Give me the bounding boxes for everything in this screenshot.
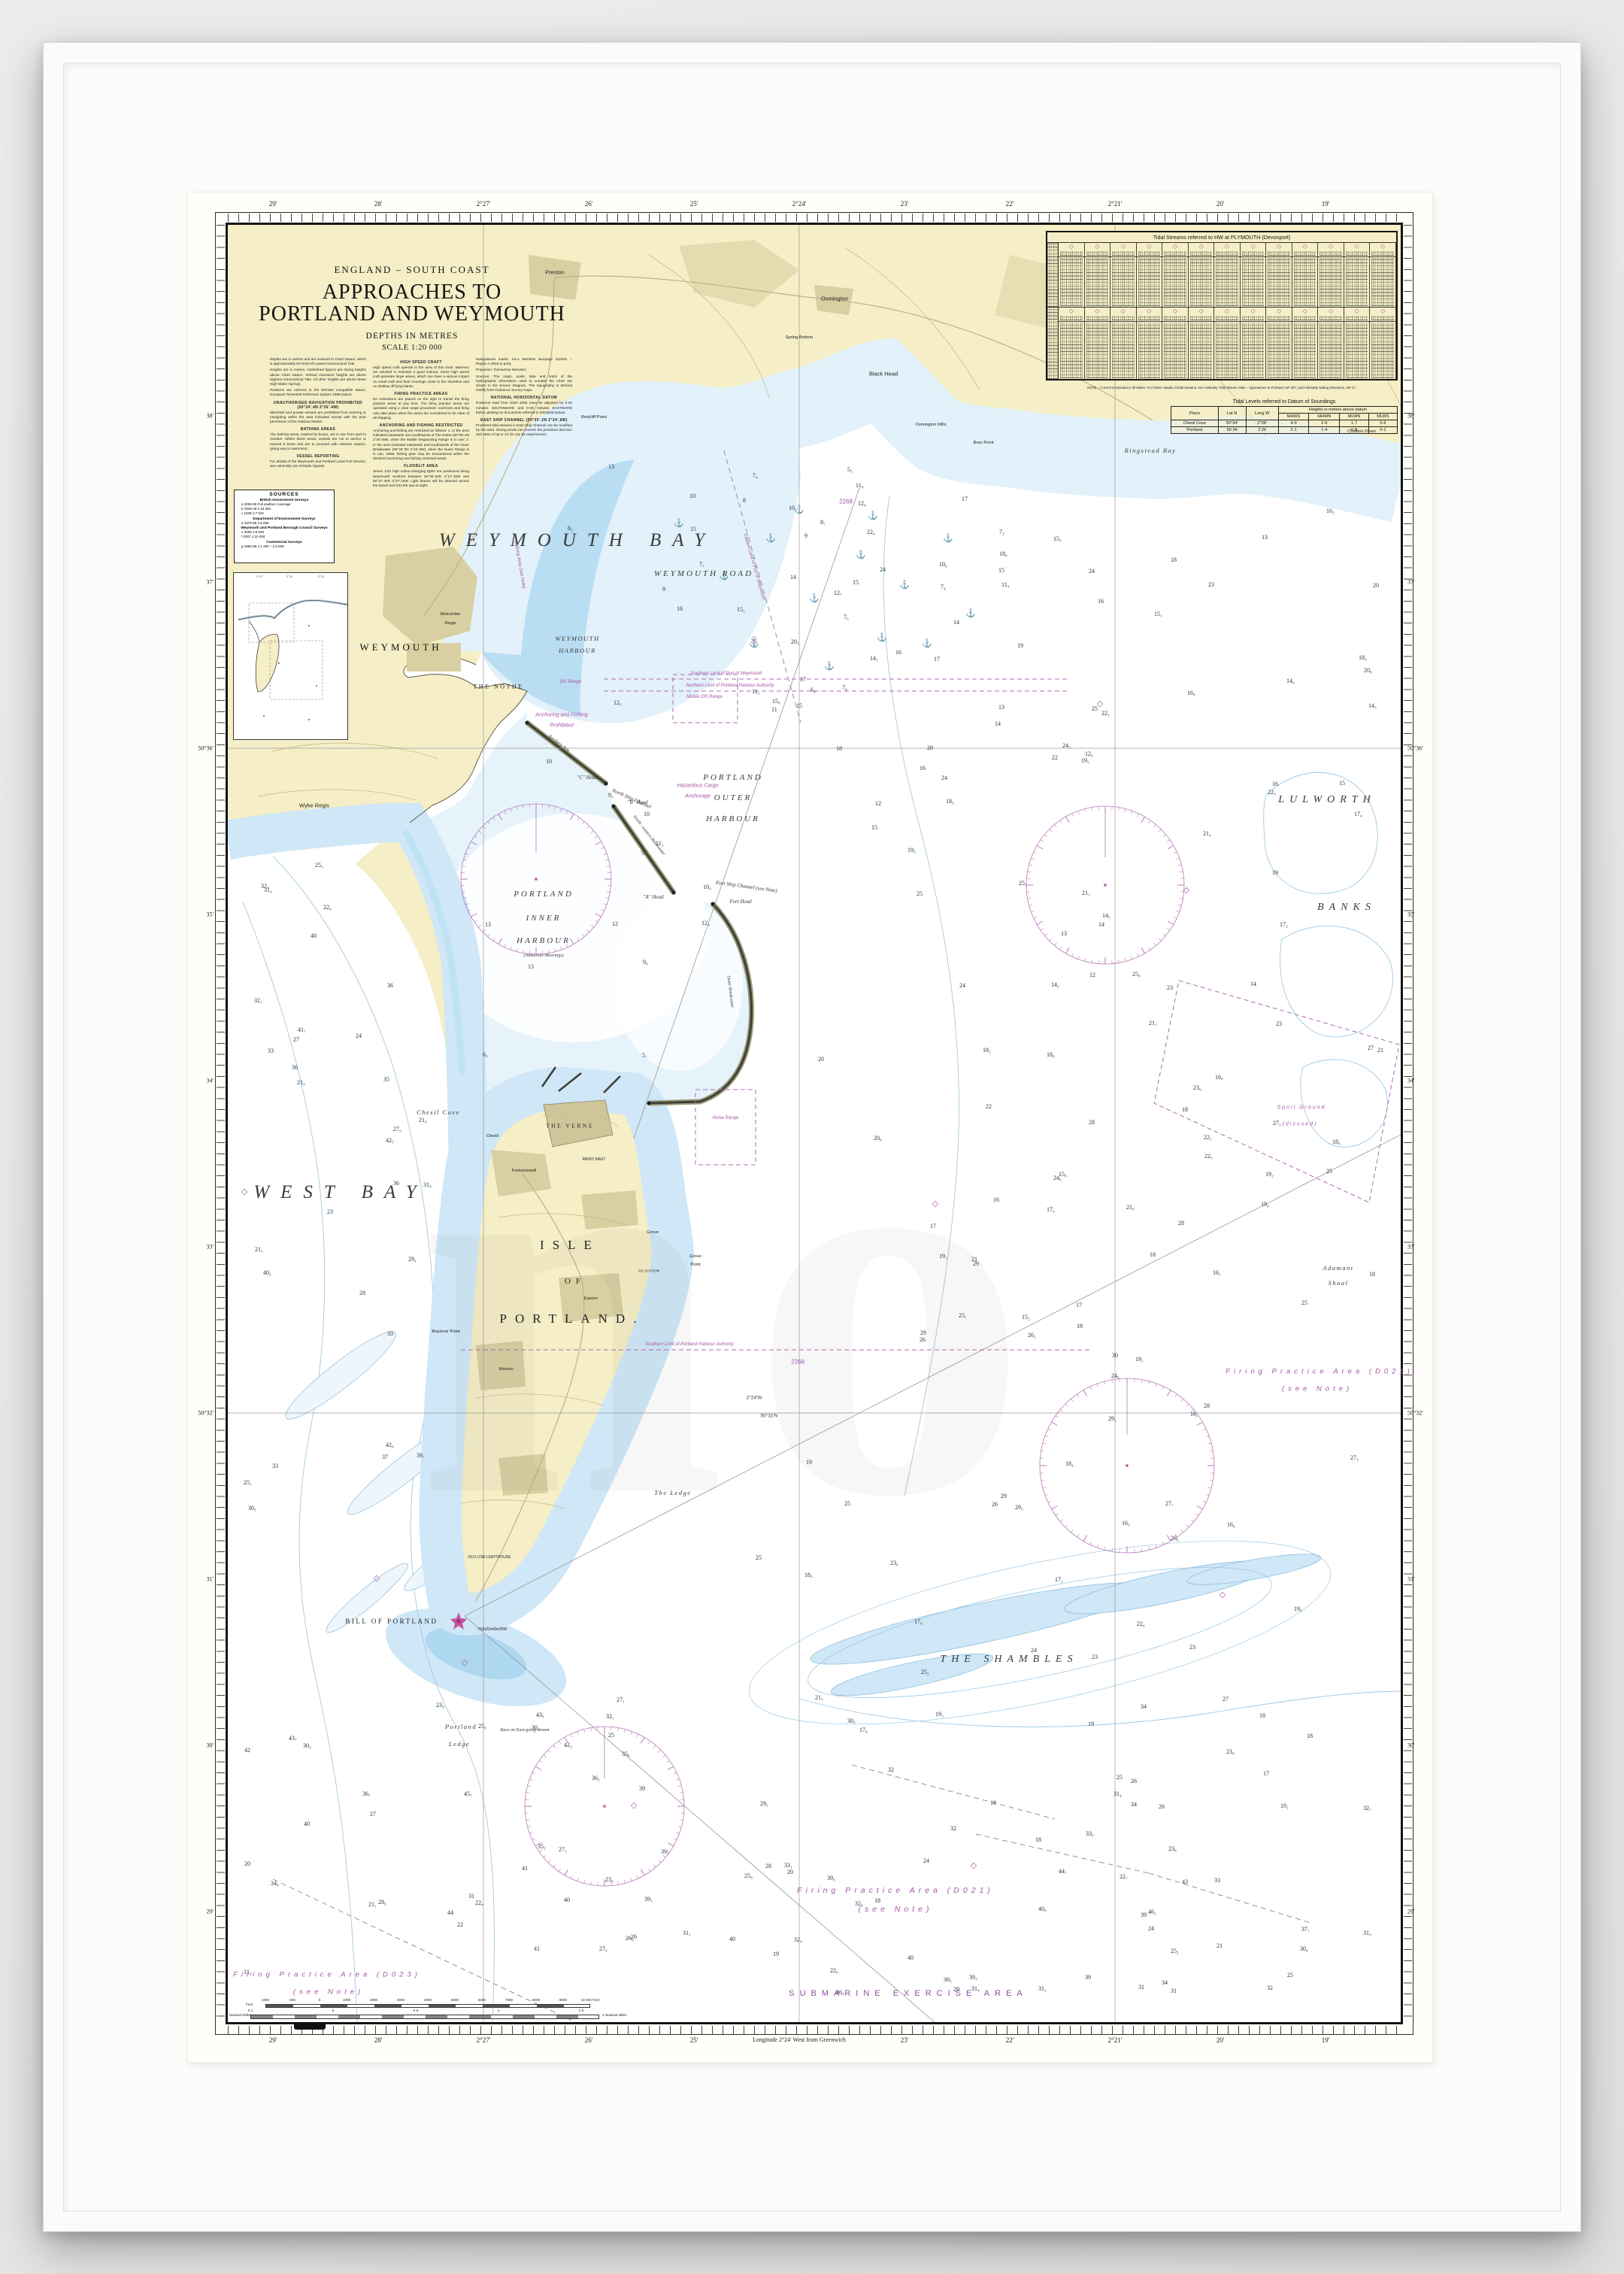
sounding: 14	[790, 574, 796, 581]
label-melcombe-1: Melcombe	[441, 612, 461, 617]
sounding: 28	[1178, 1220, 1184, 1226]
sounding: 7₄	[753, 472, 758, 479]
sounding: 5	[641, 850, 644, 857]
sounding: 39	[1141, 1912, 1147, 1918]
chart-area: ◇ 1115157₈7₇7₂18₈1713136₆16107₆10₈88₇14₂…	[228, 225, 1401, 2022]
sounding: 9	[662, 586, 665, 593]
sounding: 24	[941, 775, 947, 781]
sounding: 20	[787, 1869, 793, 1875]
sounding: 13	[1061, 930, 1067, 937]
label-blacknor-point: Blacknor Point	[432, 1330, 459, 1334]
sounding: 20	[818, 1056, 824, 1063]
label-c-head: "C" Head	[577, 775, 597, 781]
sounding: 23₈	[1226, 1748, 1235, 1755]
tidal-diamond-icon: ◇	[374, 1574, 380, 1583]
note-paragraph: Projection: Transverse Mercator.	[476, 368, 572, 372]
label-spring-bottom: Spring Bottom	[786, 335, 814, 340]
label-portland-ledge-1: Portland	[445, 1723, 477, 1730]
sounding: 13	[528, 963, 534, 970]
sounding: 22₆	[323, 904, 332, 911]
sounding: 27₁	[1273, 1120, 1281, 1126]
tidal-diamond-icon: ◇	[1225, 308, 1229, 314]
sounding: 23	[1092, 1654, 1098, 1660]
lon-label-top-10: 19'	[1322, 200, 1330, 208]
sounding: 23₈	[890, 1560, 898, 1566]
sounding: 32₇	[1363, 1805, 1371, 1812]
sounding: 43	[1182, 1878, 1188, 1885]
lat-label-left-2: 50°36'	[191, 745, 214, 752]
sounding: 21	[971, 1256, 977, 1263]
sounding: 32₁	[254, 997, 262, 1004]
sounding: 17	[934, 656, 940, 662]
sounding: 22₄	[1137, 1621, 1145, 1627]
anchor-icon: ⚓	[922, 638, 932, 648]
scale-feet-prefix: Feet	[246, 2003, 253, 2006]
sounding: 21₁	[368, 1901, 377, 1908]
sounding: 26	[1159, 1803, 1165, 1810]
sounding: 19₁	[1135, 1356, 1144, 1363]
sounding: 14₄	[1286, 678, 1295, 684]
lon-label-top-2: 2°27'	[477, 200, 491, 208]
scale-feet-label: 3000	[397, 1998, 404, 2002]
note-paragraph: Predicted tidal streams in East Ship Cha…	[476, 423, 572, 438]
lon-label-top-9: 20'	[1216, 200, 1225, 208]
scale-feet-label: 2000	[370, 1998, 377, 2002]
tidal-diamond-icon: ◇	[1121, 308, 1126, 314]
sounding: 46₁	[1148, 1909, 1156, 1915]
label-radio-mast: RADIO MAST	[582, 1157, 605, 1162]
sounding: 13	[608, 463, 614, 470]
sounding: 36₂	[592, 1775, 600, 1781]
sounding: 25₆	[1132, 971, 1141, 978]
sounding: 17	[962, 496, 968, 502]
lon-label-bottom-7: 22'	[1006, 2036, 1014, 2044]
sounding: 17₄	[1354, 811, 1362, 817]
scale-feet-label: 6000	[478, 1998, 486, 2002]
sounding: 29₅	[760, 1800, 768, 1807]
label-portland-inner-note: (Numerous Moorings)	[523, 954, 563, 958]
label-b-head: "B" Head	[627, 799, 647, 805]
sounding: 19₁	[1280, 1803, 1289, 1809]
sounding: 33	[1214, 1877, 1220, 1884]
sounding: 40	[729, 1936, 735, 1942]
sounding: 11₉	[1001, 581, 1010, 588]
sounding: 28	[359, 1290, 365, 1296]
sounding: 18₅	[804, 1572, 813, 1578]
sounding: 29	[1001, 1493, 1007, 1499]
label-bran-point: Bran Point	[973, 441, 993, 445]
label-osmington: Osmington	[821, 296, 848, 302]
sounding: 16	[920, 765, 926, 772]
sounding: 40	[907, 1954, 913, 1961]
note-paragraph: Heights are in metres. Underlined figure…	[270, 368, 366, 387]
sounding: 18₈	[999, 550, 1007, 557]
label-spoil-ground-2: (disused)	[1283, 1122, 1318, 1127]
sounding: 16	[895, 649, 901, 656]
lon-label-bottom-2: 2°27'	[477, 2036, 491, 2044]
sounding: 41	[522, 1865, 528, 1872]
label-fpa-d021-south: Firing Practice Area (D021)	[797, 1886, 994, 1895]
sounding: 33₁	[784, 1862, 792, 1869]
sounding: 18₉	[946, 798, 954, 805]
picture-frame: 29'28'2°27'26'25'2°24'23'22'2°21'20'19'2…	[43, 42, 1581, 2232]
tidal-diamond-icon: ◇	[1095, 308, 1099, 314]
chart-scale-note: SCALE 1:20 000	[258, 344, 566, 352]
anchor-icon: ⚓	[965, 608, 976, 618]
sounding: 15	[871, 824, 877, 831]
tidal-diamond-icon: ◇	[1329, 308, 1333, 314]
tidal-diamond-icon: ◇	[1198, 243, 1203, 250]
sounding: 25₂	[1171, 1948, 1179, 1954]
sounding: 18₂	[1359, 654, 1367, 661]
tidal-diamond-icon: ◇	[1277, 308, 1281, 314]
label-weymouth-harbour-2: HARBOUR	[559, 647, 596, 654]
sounding: 27	[1368, 1045, 1374, 1051]
sounding: 21₄	[1203, 830, 1211, 837]
sounding: 15	[853, 579, 859, 586]
sounding: 24	[356, 1032, 362, 1039]
label-ringstead-bay: Ringstead Bay	[1125, 447, 1177, 454]
scale-feet-label: 4000	[424, 1998, 432, 2002]
label-fpa-d021-east: Firing Practice Area (D021)	[1226, 1368, 1413, 1376]
sources-row: d 1978-90 1:5 000	[241, 521, 332, 526]
tidal-diamond-icon: ◇	[462, 1658, 468, 1667]
label-adamant-1: Adamant	[1323, 1264, 1353, 1272]
sounding: 12₆	[1085, 750, 1093, 757]
sounding: 17	[1076, 1302, 1082, 1308]
tidal-streams-table: Tidal Streams referred to HW at PLYMOUTH…	[1046, 231, 1398, 381]
sounding: 19	[773, 1951, 779, 1957]
sounding: 16	[1272, 781, 1278, 787]
tidal-diamond-icon: ◇	[1225, 243, 1229, 250]
sounding: 26₂	[1028, 1332, 1036, 1339]
sounding: 15₆	[772, 698, 780, 705]
sounding: 14₂	[1051, 981, 1059, 988]
label-easton: Easton	[584, 1296, 598, 1301]
anchor-icon: ⚓	[868, 511, 878, 520]
sounding: 29₅	[1015, 1504, 1023, 1511]
label-anchoring-prohibited-1: Anchoring and Fishing	[535, 713, 588, 718]
label-fort-head: Fort Head	[729, 899, 751, 905]
sounding: 7₇	[699, 561, 704, 568]
sounding: 34	[1131, 1801, 1137, 1808]
sources-row: g 1984-85 1:1 250 – 1:5 000	[241, 544, 332, 549]
note-paragraph: No restrictions are placed on the right …	[373, 397, 469, 420]
sounding: 18	[1259, 1712, 1265, 1719]
label-portland-inner-2: INNER	[526, 914, 562, 923]
sounding: 17₆	[914, 1618, 923, 1625]
sounding: 41₇	[298, 1026, 306, 1033]
sounding: 7₈	[842, 684, 847, 691]
sounding: 5₃	[847, 466, 853, 473]
sounding: 39₈	[827, 1875, 835, 1881]
sounding: 10	[689, 493, 695, 499]
sounding: 15₅	[1053, 535, 1062, 542]
lat-label-right-6: 50°32'	[1407, 1410, 1423, 1417]
sounding: 25	[1287, 1972, 1293, 1978]
sounding: 45₇	[464, 1790, 472, 1797]
sounding: 19₄	[1261, 1201, 1269, 1208]
lat-label-right-5: 33'	[1407, 1244, 1414, 1251]
sounding: 15	[998, 567, 1004, 574]
sounding: 37₁	[1301, 1926, 1310, 1933]
sounding: 17	[800, 676, 806, 683]
sounding: 30₃	[303, 1742, 311, 1749]
sounding: 23₆	[605, 1876, 614, 1883]
lat-label-left-3: 35'	[191, 911, 214, 918]
anchor-icon: ⚓	[765, 533, 776, 543]
tidal-diamond-icon: ◇	[631, 1801, 638, 1810]
sounding: 39₇	[417, 1452, 425, 1459]
tidal-diamond-icon: ◇	[1173, 308, 1177, 314]
sounding: 31₁	[683, 1930, 691, 1936]
sounding: 30	[1112, 1352, 1118, 1359]
lon-label-bottom-9: 20'	[1216, 2036, 1225, 2044]
lat-label-left-7: 31'	[191, 1576, 214, 1583]
sounding: 31₄	[264, 887, 272, 893]
label-limit-south-portland: Southern Limit of Portland Harbour Autho…	[645, 1342, 734, 1347]
label-the-ledge: The Ledge	[654, 1489, 691, 1496]
sounding: 25₃	[315, 862, 323, 869]
sounding: 21₁	[1082, 890, 1090, 896]
scale-feet-label: 5000	[451, 1998, 459, 2002]
label-spoil-ground-1: Spoil Ground	[1277, 1105, 1326, 1111]
sounding: 39₃	[969, 1974, 977, 1981]
label-fpa-d023-note: (see Note)	[293, 1988, 364, 1997]
lat-label-right-4: 34'	[1407, 1078, 1414, 1084]
sounding: 14₂	[870, 655, 878, 662]
sounding: 14₃	[1368, 702, 1377, 709]
label-fpa-d023: Firing Practice Area (D023)	[233, 1971, 421, 1979]
sounding: 6₆	[810, 687, 816, 693]
sounding: 21	[1377, 1047, 1383, 1054]
sounding: 17₂	[1055, 1576, 1063, 1583]
inset-lon-label3: 2°21'	[318, 575, 325, 578]
note-heading: NATIONAL HORIZONTAL DATUM	[476, 396, 572, 400]
sounding: 25	[917, 890, 923, 897]
sounding: 25	[1326, 1168, 1332, 1175]
chart-title-line1: APPROACHES TO	[258, 281, 566, 303]
tidal-diamond-icon: ◇	[1380, 243, 1385, 250]
sounding: 20	[927, 744, 933, 751]
sounding: 40₃	[263, 1269, 271, 1276]
sounding: 18	[1182, 1106, 1188, 1113]
label-submarine-exercise-area: SUBMARINE EXERCISE AREA	[789, 1989, 1028, 1998]
sounding: 42₈	[386, 1442, 394, 1448]
label-cg-station: CG STATION	[638, 1270, 660, 1274]
sounding: 25	[756, 1554, 762, 1561]
sounding: 16	[993, 1196, 999, 1203]
note-paragraph: For details of the Weymouth and Portland…	[270, 459, 366, 468]
sounding: 29	[920, 1330, 926, 1336]
sounding: 31₂	[1038, 1985, 1047, 1992]
sounding: 21₁	[1149, 1020, 1157, 1026]
sounding: 12₅	[614, 699, 622, 706]
sounding: 19	[1088, 1721, 1094, 1727]
sounding: 23₄	[436, 1702, 444, 1709]
tidal-diamond-icon: ◇	[1121, 243, 1126, 250]
sounding: 25	[1301, 1299, 1307, 1306]
sounding: 30₃	[248, 1505, 256, 1511]
scale-miles-suffix: 2 Nautical Miles	[602, 2013, 626, 2017]
lat-label-left-0: 38'	[191, 413, 214, 420]
anchor-icon: ⚓	[674, 518, 684, 528]
lat-label-right-9: 29'	[1407, 1909, 1414, 1915]
sounding: 27₁	[559, 1846, 567, 1853]
scale-bar-miles	[250, 2015, 599, 2019]
sounding: 18₆	[1047, 1051, 1055, 1058]
sounding: 27	[370, 1811, 376, 1818]
lon-label-bottom-10: 19'	[1322, 2036, 1330, 2044]
tidal-diamond-icon: ◇	[1198, 308, 1203, 314]
anchor-icon: ⚓	[809, 593, 820, 603]
sounding: 10₉	[703, 884, 711, 890]
tidal-diamond-icon: ◇	[241, 1187, 248, 1196]
scale-miles-label: 0·5	[414, 2009, 419, 2012]
chart-region: ENGLAND – SOUTH COAST	[258, 264, 566, 276]
label-chesil-cove: Chesil Cove	[417, 1108, 460, 1116]
sounding: 17	[1263, 1770, 1269, 1777]
label-portland-outer-1: PORTLAND	[703, 773, 763, 782]
sounding: 19₉	[1294, 1605, 1302, 1612]
lat-label-right-0: 38'	[1407, 413, 1414, 420]
graticule-ticks-right	[1404, 225, 1412, 2022]
chart-print: 29'28'2°27'26'25'2°24'23'22'2°21'20'19'2…	[188, 193, 1432, 2062]
anchor-icon: ⚓	[824, 661, 835, 671]
sounding: 15	[796, 702, 802, 709]
label-limit-south-weymouth: Southern Limit of Port of Weymouth	[691, 672, 762, 676]
sounding: 22	[1052, 754, 1058, 761]
sounding: 43₇	[289, 1735, 297, 1742]
sounding: 34	[1162, 1979, 1168, 1986]
label-weston: Weston	[498, 1367, 514, 1372]
scale-miles-label: 1·5	[579, 2009, 584, 2012]
sounding: 30₅	[847, 1718, 856, 1724]
label-portland-ledge-2: Ledge	[449, 1740, 470, 1748]
sounding: 22₈	[475, 1900, 483, 1906]
scale-feet-label: 7000	[505, 1998, 513, 2002]
label-hazardous-cargo-1: Hazardous Cargo	[677, 784, 719, 789]
sounding: 19₆	[907, 847, 916, 854]
label-bill-of-portland: BILL OF PORTLAND	[345, 1618, 438, 1625]
label-grove-point-1: Grove	[689, 1254, 701, 1259]
label-chaldon-down: Chaldon Down	[1347, 429, 1376, 434]
label-noise-range: Noise Range	[713, 1116, 739, 1120]
sounding: 18	[1307, 1733, 1313, 1739]
sounding: 19₅	[1081, 757, 1089, 764]
label-grid-lon: 2°24'W	[747, 1396, 762, 1401]
sounding: 23	[1208, 581, 1214, 588]
sounding: 18₆	[1332, 1139, 1341, 1145]
sounding: 40	[304, 1821, 310, 1827]
note-paragraph: Positions are referred to the WGS84 comp…	[270, 388, 366, 397]
sounding: 16₄	[1227, 1521, 1235, 1528]
tidal-levels-title: Tidal Levels referred to Datum of Soundi…	[1171, 399, 1398, 405]
tidal-diamond-icon: ◇	[1277, 243, 1281, 250]
label-osmington-mills: Osmington Mills	[915, 423, 946, 427]
lon-label-top-8: 2°21'	[1108, 200, 1123, 208]
sounding: 29₄	[408, 1256, 417, 1263]
sounding: 14₅	[1102, 912, 1110, 919]
sounding: 31	[1138, 1984, 1144, 1991]
label-a-head: "A" Head	[643, 894, 663, 900]
sounding: 33	[268, 1048, 274, 1054]
source-diagram-map	[234, 573, 347, 739]
notes-column-colA: Depths are in metres and are reduced to …	[270, 357, 366, 490]
sounding: 26	[992, 1501, 998, 1508]
sounding: 12₄	[858, 500, 866, 507]
scale-feet-label: 10 000 Feet	[581, 1998, 600, 2002]
label-fpa-d021-east-note: (see Note)	[1282, 1385, 1353, 1393]
sounding: 22₄	[867, 529, 875, 535]
sounding: 12₇	[834, 590, 842, 596]
sources-row: c 1938 1:7 915	[241, 511, 332, 516]
sounding: 22₅	[1204, 1153, 1213, 1160]
sounding: 19	[806, 1459, 812, 1466]
sounding: 7₆	[844, 614, 849, 620]
sounding: 36	[292, 1064, 298, 1071]
sounding: 23	[1189, 1644, 1195, 1651]
sources-title: SOURCES	[237, 492, 332, 497]
sounding: 18₂	[983, 1047, 991, 1054]
sounding: 32	[950, 1825, 956, 1832]
sounding: 12	[1089, 972, 1095, 978]
note-heading: HIGH SPEED CRAFT	[373, 360, 469, 365]
lon-label-top-5: 2°24'	[792, 200, 807, 208]
label-anchoring-prohibited-2: Prohibited	[550, 723, 574, 729]
sounding: 24	[880, 566, 886, 573]
lat-label-right-3: 35'	[1407, 911, 1414, 918]
label-portland-inner-1: PORTLAND	[514, 890, 574, 899]
sounding: 13	[485, 921, 491, 928]
note-heading: ANCHORING AND FISHING RESTRICTED	[373, 423, 469, 428]
note-paragraph: Positions read from chart 2255 must be a…	[476, 401, 572, 415]
sea-label-west-bay: WEST BAY	[253, 1182, 427, 1203]
sounding: 15₂	[737, 606, 745, 613]
anchor-icon: ⚓	[794, 505, 804, 514]
sounding: 20₈	[1364, 667, 1372, 674]
sounding: 18	[1150, 1251, 1156, 1258]
lat-label-right-2: 50°36'	[1407, 745, 1423, 752]
note-paragraph: Depths are in metres and are reduced to …	[270, 357, 366, 366]
sounding: 24	[959, 982, 965, 989]
anchor-icon: ⚓	[899, 580, 910, 590]
label-adjoining-chart-1: 2268	[839, 499, 853, 505]
sounding: 21₉	[297, 1079, 305, 1086]
sounding: 6₃	[483, 1051, 488, 1058]
sounding: 21₄	[419, 1117, 427, 1123]
label-black-head: Black Head	[869, 371, 898, 377]
sounding: 24	[1031, 1647, 1037, 1654]
sounding: 24₃	[1062, 742, 1071, 749]
scale-feet-label: 9000	[559, 1998, 567, 2002]
sounding: 33	[272, 1463, 278, 1469]
sounding: 9	[804, 532, 807, 539]
sounding: 31	[1171, 1987, 1177, 1994]
sounding: 21₆	[1126, 1204, 1135, 1211]
sounding: 40₈	[1038, 1906, 1047, 1912]
sounding: 27	[1223, 1696, 1229, 1702]
label-light-characteristics: Fl(4)20s43m25M	[478, 1627, 507, 1632]
notes-column-colC: Navigational marks: IALA Maritime Buoyag…	[476, 357, 572, 490]
sounding: 31₄	[1113, 1790, 1122, 1797]
sounding: 27₂	[1350, 1454, 1359, 1461]
sounding: 23₈	[1168, 1845, 1177, 1852]
sounding: 24	[923, 1857, 929, 1864]
sounding: 16₃	[1122, 1520, 1130, 1527]
tidal-diamond-icon: ◇	[971, 1861, 977, 1870]
anchor-icon: ⚓	[877, 632, 887, 642]
